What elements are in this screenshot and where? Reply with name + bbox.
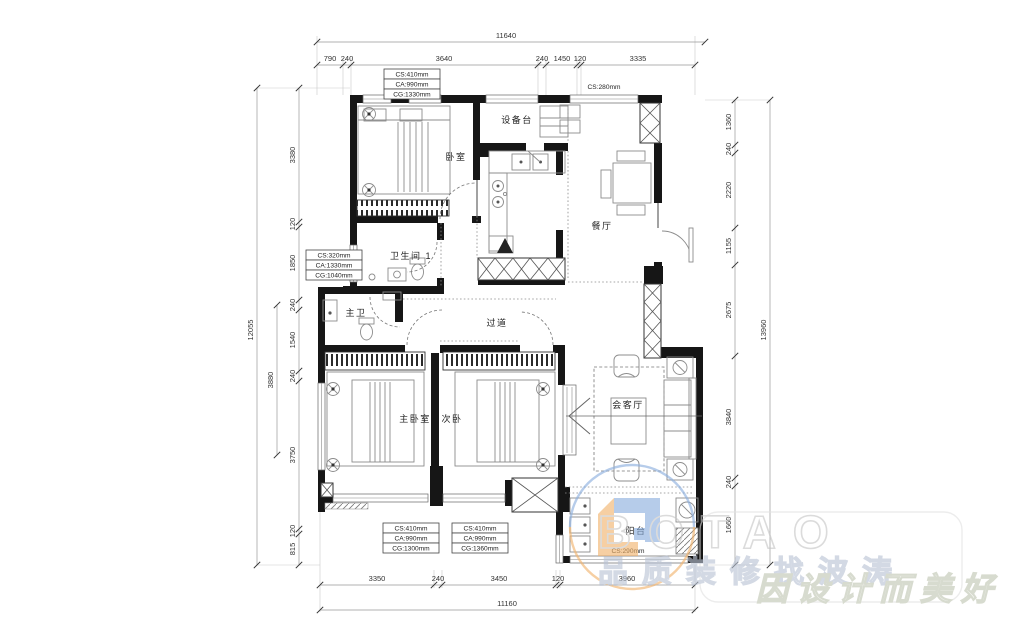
dim-right-seg: 240	[724, 143, 733, 156]
dim-bottom-seg: 3350	[369, 574, 386, 583]
sink-icon	[323, 300, 337, 321]
room-label-living: 会客厅	[612, 399, 644, 410]
wardrobe	[325, 352, 425, 370]
room-kitchen	[489, 151, 565, 253]
dim-left-seg: 240	[288, 299, 297, 312]
dim-left-total: 12055	[246, 320, 255, 341]
entry-door	[662, 228, 693, 262]
dim-right-seg: 240	[724, 476, 733, 489]
stove-icon	[493, 181, 507, 208]
sink-icon	[533, 154, 548, 170]
dimension-right: 1360 240 2220 1155 2675 3840 240 1660 13…	[703, 97, 773, 568]
dim-top-total: 11640	[496, 31, 516, 40]
floor-plan-drawing: 11640 790 240 3640 240 1450 120 3335 120…	[0, 0, 1011, 628]
window	[486, 95, 538, 103]
spec-box-1: CS:410mm CA:990mm CG:1330mm	[384, 69, 440, 99]
sofa	[664, 378, 696, 459]
dim-top-seg: 790	[324, 54, 337, 63]
watermark-brand: BOTAO	[598, 506, 846, 558]
spec-line: CA:1330mm	[316, 263, 353, 270]
room-living	[566, 355, 702, 481]
small-shaft	[321, 483, 333, 497]
window	[318, 383, 325, 470]
dining-table	[613, 163, 651, 203]
dim-right-seg: 2220	[724, 182, 733, 199]
dim-top-seg: 3640	[436, 54, 453, 63]
door-arc	[407, 310, 442, 345]
dim-left-seg: 3750	[288, 447, 297, 464]
duct-shaft-top-right	[640, 103, 660, 143]
blanket-stripes	[495, 382, 515, 462]
toilet-icon	[359, 318, 374, 340]
dim-right-seg: 1360	[724, 114, 733, 131]
window	[556, 535, 563, 563]
door-arc	[520, 312, 553, 345]
spec-line: CA:990mm	[396, 82, 429, 89]
blanket-stripes	[398, 122, 428, 192]
spec-line: CS:410mm	[396, 72, 429, 79]
spec-line: CS:410mm	[464, 526, 497, 533]
room-label-second-bedroom: 次卧	[441, 413, 462, 424]
chair	[617, 151, 645, 161]
dim-top-seg: 120	[574, 54, 587, 63]
dimension-top: 11640 790 240 3640 240 1450 120 3335	[314, 31, 708, 95]
watermark: BOTAO 品质装修找波涛 因设计而美好	[570, 465, 1002, 607]
cabinet	[560, 120, 580, 133]
side-table-lamp	[667, 459, 693, 480]
dim-left-seg: 120	[288, 218, 297, 231]
dim-left-seg: 1850	[288, 255, 297, 272]
room-label-corridor: 过道	[486, 317, 507, 328]
room-second-bedroom	[443, 352, 555, 472]
chair	[617, 205, 645, 215]
armchair	[614, 459, 639, 481]
toilet-icon	[410, 258, 425, 280]
room-label-master-bath: 主卫	[345, 307, 366, 318]
cabinet	[560, 105, 580, 118]
light-symbol	[363, 184, 376, 197]
structural-column	[644, 284, 661, 358]
equipment-platform	[540, 106, 568, 137]
dim-bottom-seg: 120	[552, 574, 565, 583]
kitchen-cabinet-strip	[478, 258, 565, 280]
dim-left-partial: 3880	[266, 372, 275, 389]
windows	[318, 95, 688, 563]
dim-bottom-total: 11160	[497, 599, 517, 608]
dim-top-seg: 240	[341, 54, 354, 63]
rug	[594, 367, 664, 471]
room-label-bedroom: 卧室	[445, 151, 466, 162]
spec-line: CG:1300mm	[392, 546, 430, 553]
dim-top-seg: 1450	[554, 54, 571, 63]
dim-left-seg: 1540	[288, 332, 297, 349]
spec-box-2: CS:320mm CA:1330mm CG:1040mm	[306, 250, 362, 280]
chair	[601, 170, 611, 198]
window-sill	[325, 503, 368, 509]
blanket-stripes	[370, 382, 390, 462]
room-label-dining: 餐厅	[591, 220, 612, 231]
spec-line: CG:1330mm	[393, 92, 431, 99]
spec-box-3: CS:410mm CA:990mm CG:1300mm	[383, 523, 439, 553]
spec-line: CG:1040mm	[315, 273, 353, 280]
spec-line: CG:1360mm	[461, 546, 499, 553]
dim-left-seg: 815	[288, 543, 297, 556]
dim-left-seg: 240	[288, 370, 297, 383]
light-symbol	[537, 383, 550, 396]
room-label-master-bedroom: 主卧室	[399, 413, 431, 424]
floor-drain-icon	[369, 274, 375, 280]
dim-right-seg: 2675	[724, 302, 733, 319]
dim-bottom-seg: 3450	[491, 574, 508, 583]
spec-top-right: CS:280mm	[588, 84, 621, 91]
spec-line: CS:410mm	[395, 526, 428, 533]
floor-plan-page: 11640 790 240 3640 240 1450 120 3335 120…	[0, 0, 1011, 628]
light-symbol	[537, 459, 550, 472]
sink-icon	[388, 268, 406, 281]
wardrobe	[357, 200, 449, 216]
window	[570, 95, 638, 103]
dim-top-seg: 240	[536, 54, 549, 63]
corner-unit	[489, 236, 513, 253]
window	[333, 494, 428, 502]
watermark-tagline2: 因设计而美好	[756, 571, 1002, 607]
side-table-lamp	[667, 357, 693, 378]
light-symbol	[327, 459, 340, 472]
armchair	[614, 355, 639, 377]
elevator-shaft	[512, 478, 558, 512]
dim-bottom-seg: 240	[432, 574, 445, 583]
dim-top-seg: 3335	[630, 54, 647, 63]
room-label-bath1: 卫生间 1	[390, 250, 432, 261]
spec-line: CA:990mm	[464, 536, 497, 543]
light-symbol	[327, 383, 340, 396]
dim-left-seg: 120	[288, 525, 297, 538]
spec-line: CS:320mm	[318, 253, 351, 260]
wardrobe	[443, 352, 555, 370]
room-master-bedroom	[325, 352, 425, 472]
dim-left-seg: 3380	[288, 147, 297, 164]
dim-right-seg: 1155	[724, 238, 733, 254]
room-dining	[560, 105, 651, 215]
spec-line: CA:990mm	[395, 536, 428, 543]
dim-right-seg: 3840	[724, 409, 733, 426]
room-bedroom	[357, 106, 450, 216]
sink-icon	[512, 154, 530, 170]
room-label-equipment: 设备台	[501, 114, 533, 125]
spec-box-4: CS:410mm CA:990mm CG:1360mm	[452, 523, 508, 553]
room-bath1	[369, 258, 425, 281]
window	[443, 494, 505, 502]
dim-right-total: 13960	[759, 320, 768, 341]
